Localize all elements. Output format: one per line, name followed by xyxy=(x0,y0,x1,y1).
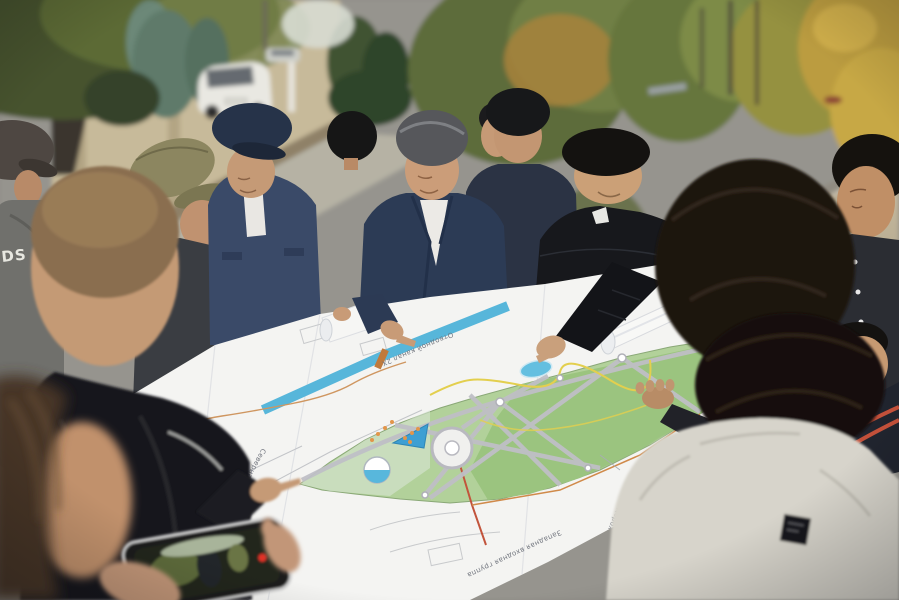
scene-canvas: DS xyxy=(0,0,899,600)
photo-scene: DS xyxy=(0,0,899,600)
vignette-overlay xyxy=(0,0,899,600)
